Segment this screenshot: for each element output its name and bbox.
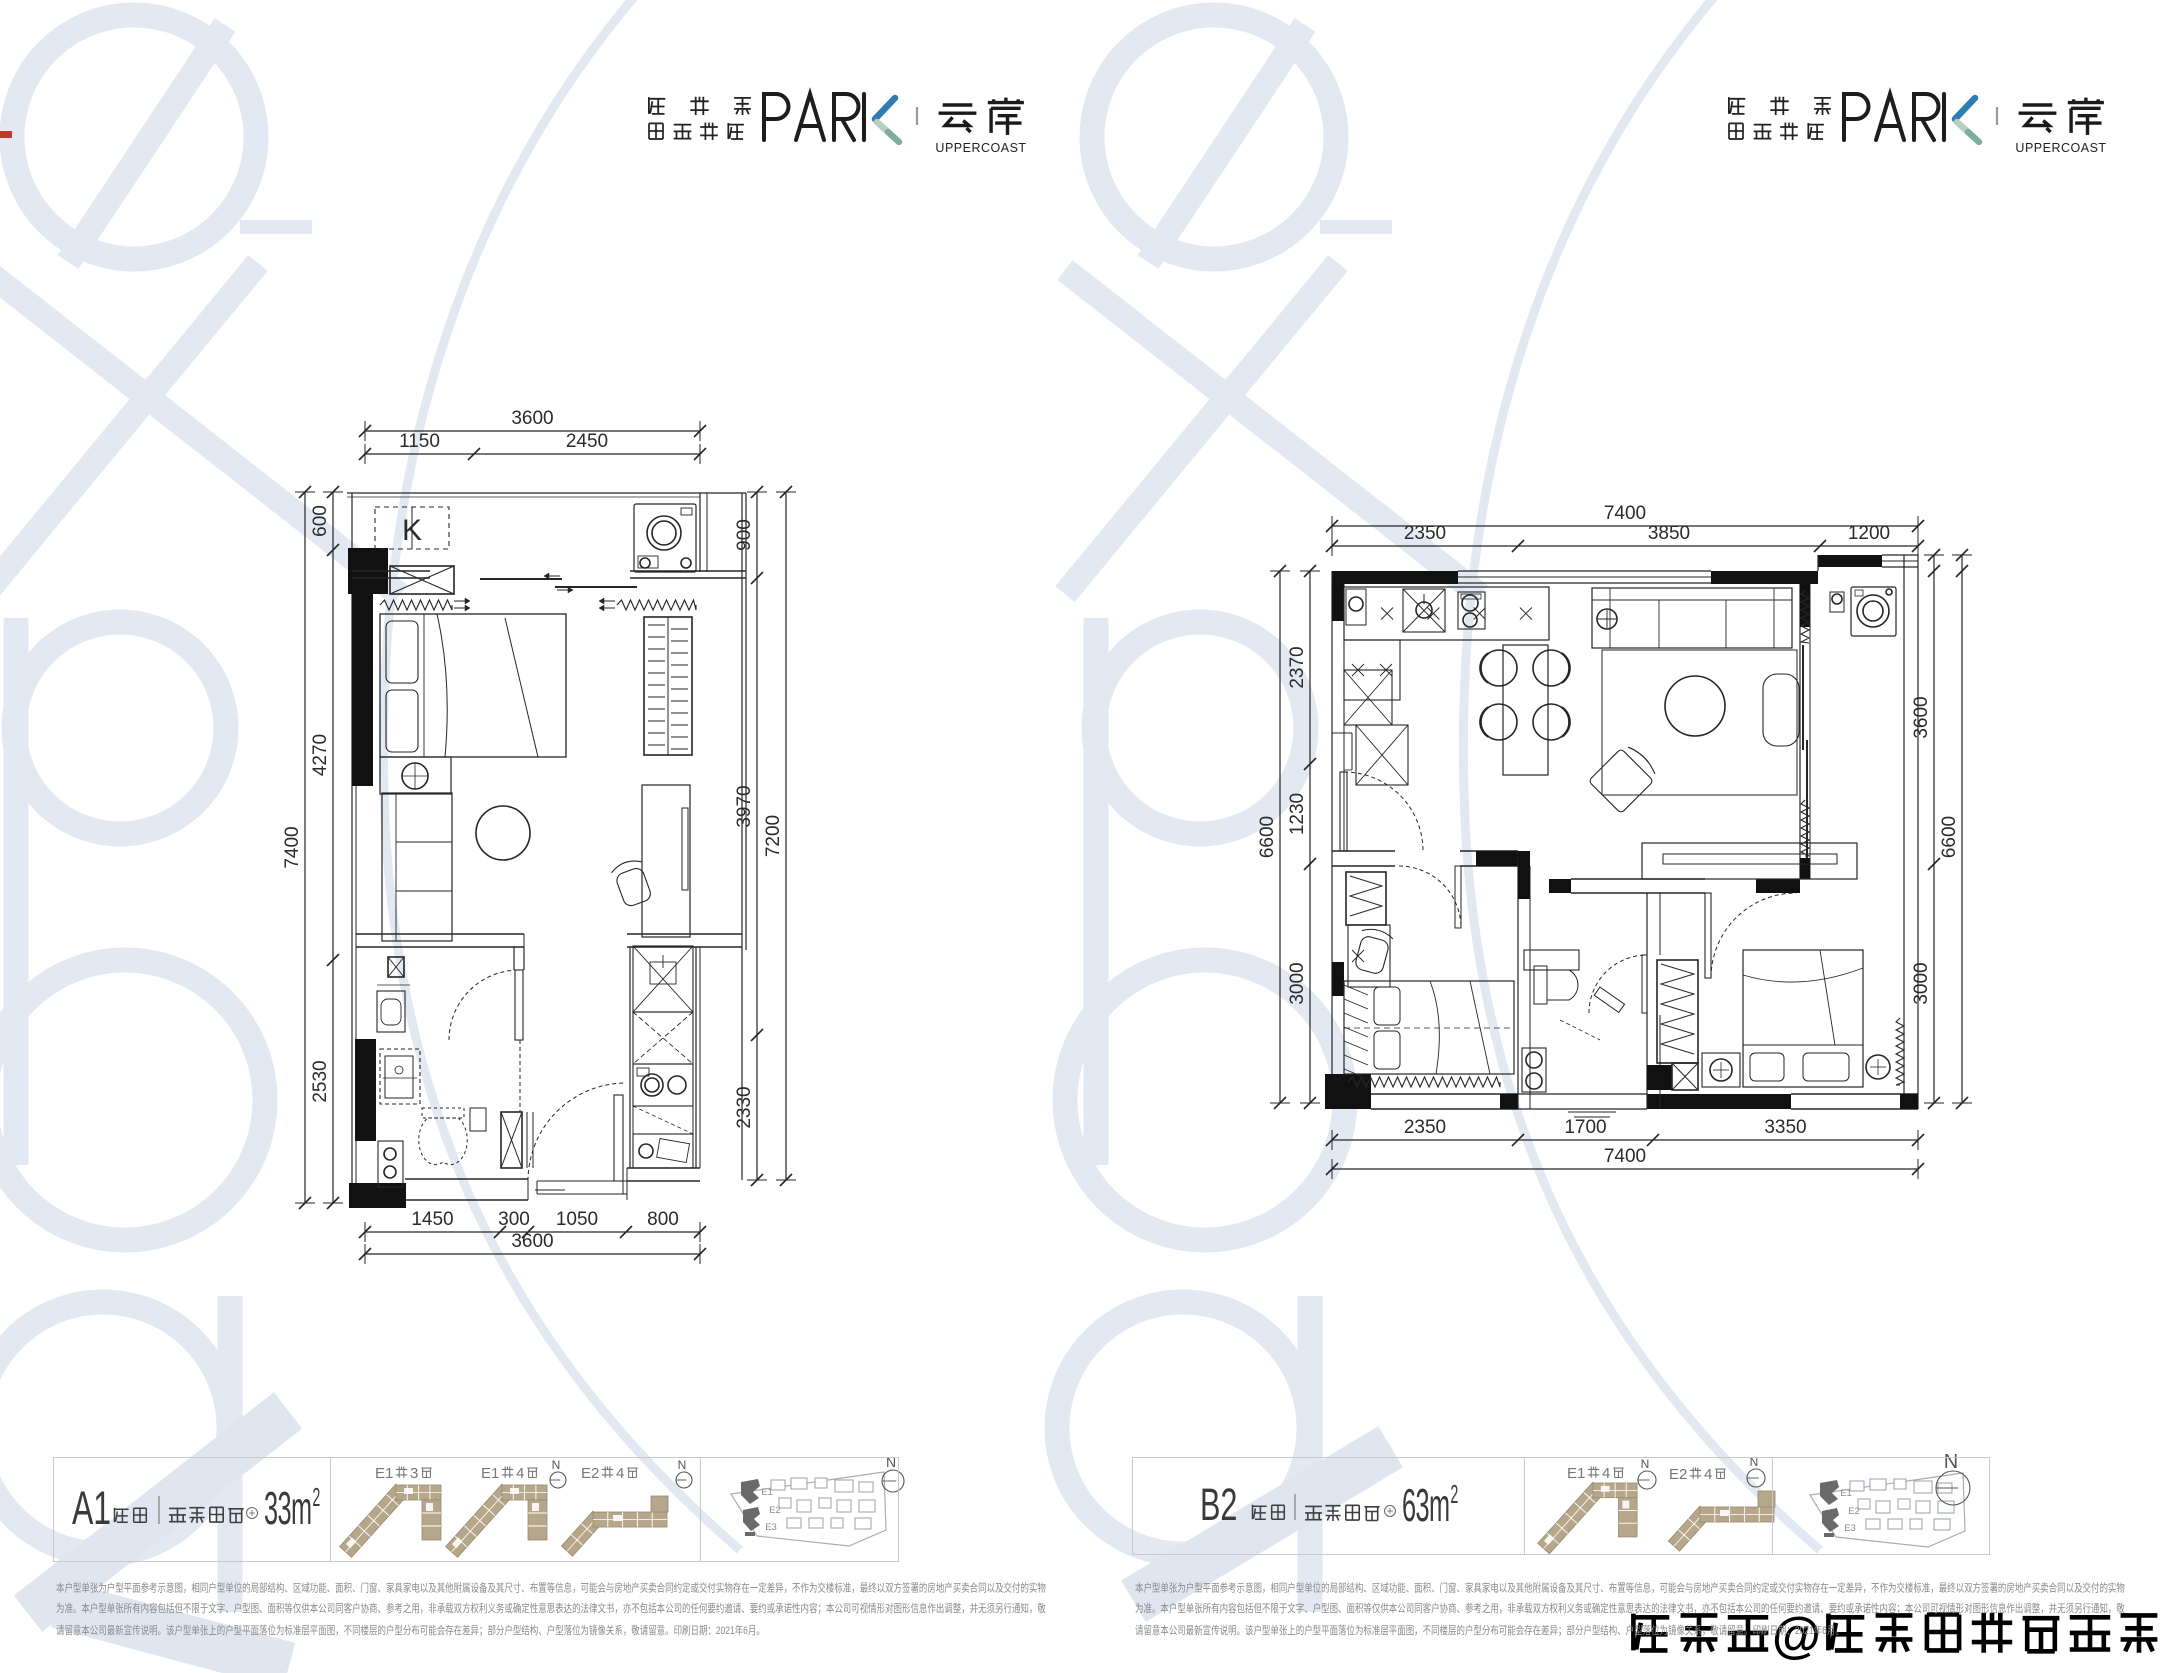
svg-text:3600: 3600 [1911,696,1932,738]
svg-text:UPPERCOAST: UPPERCOAST [2015,141,2106,155]
svg-text:1230: 1230 [1287,793,1308,835]
svg-text:7200: 7200 [763,815,784,857]
svg-text:6600: 6600 [1939,816,1960,858]
svg-text:2530: 2530 [310,1060,331,1102]
svg-text:7400: 7400 [282,826,303,868]
svg-text:3000: 3000 [1287,962,1308,1004]
svg-text:1700: 1700 [1564,1117,1606,1138]
svg-text:7400: 7400 [1604,1146,1646,1167]
svg-text:4270: 4270 [310,734,331,776]
svg-text:3600: 3600 [511,1231,553,1252]
svg-text:7400: 7400 [1604,503,1646,524]
svg-text:1450: 1450 [411,1209,453,1230]
svg-text:1200: 1200 [1848,523,1890,544]
svg-text:1050: 1050 [556,1209,598,1230]
svg-text:800: 800 [647,1209,679,1230]
svg-text:UPPERCOAST: UPPERCOAST [935,141,1026,155]
svg-text:2330: 2330 [734,1086,755,1128]
svg-text:600: 600 [310,505,331,537]
svg-text:1150: 1150 [399,431,440,452]
svg-text:3600: 3600 [511,408,553,429]
svg-text:2450: 2450 [566,431,608,452]
svg-text:6600: 6600 [1257,816,1278,858]
svg-text:3970: 3970 [734,785,755,827]
svg-text:900: 900 [734,519,755,551]
svg-text:3350: 3350 [1764,1117,1806,1138]
svg-text:300: 300 [498,1209,530,1230]
svg-text:3850: 3850 [1648,523,1690,544]
svg-text:2350: 2350 [1404,1117,1446,1138]
svg-text:3000: 3000 [1911,962,1932,1004]
svg-text:2350: 2350 [1404,523,1446,544]
svg-text:2370: 2370 [1287,646,1308,688]
